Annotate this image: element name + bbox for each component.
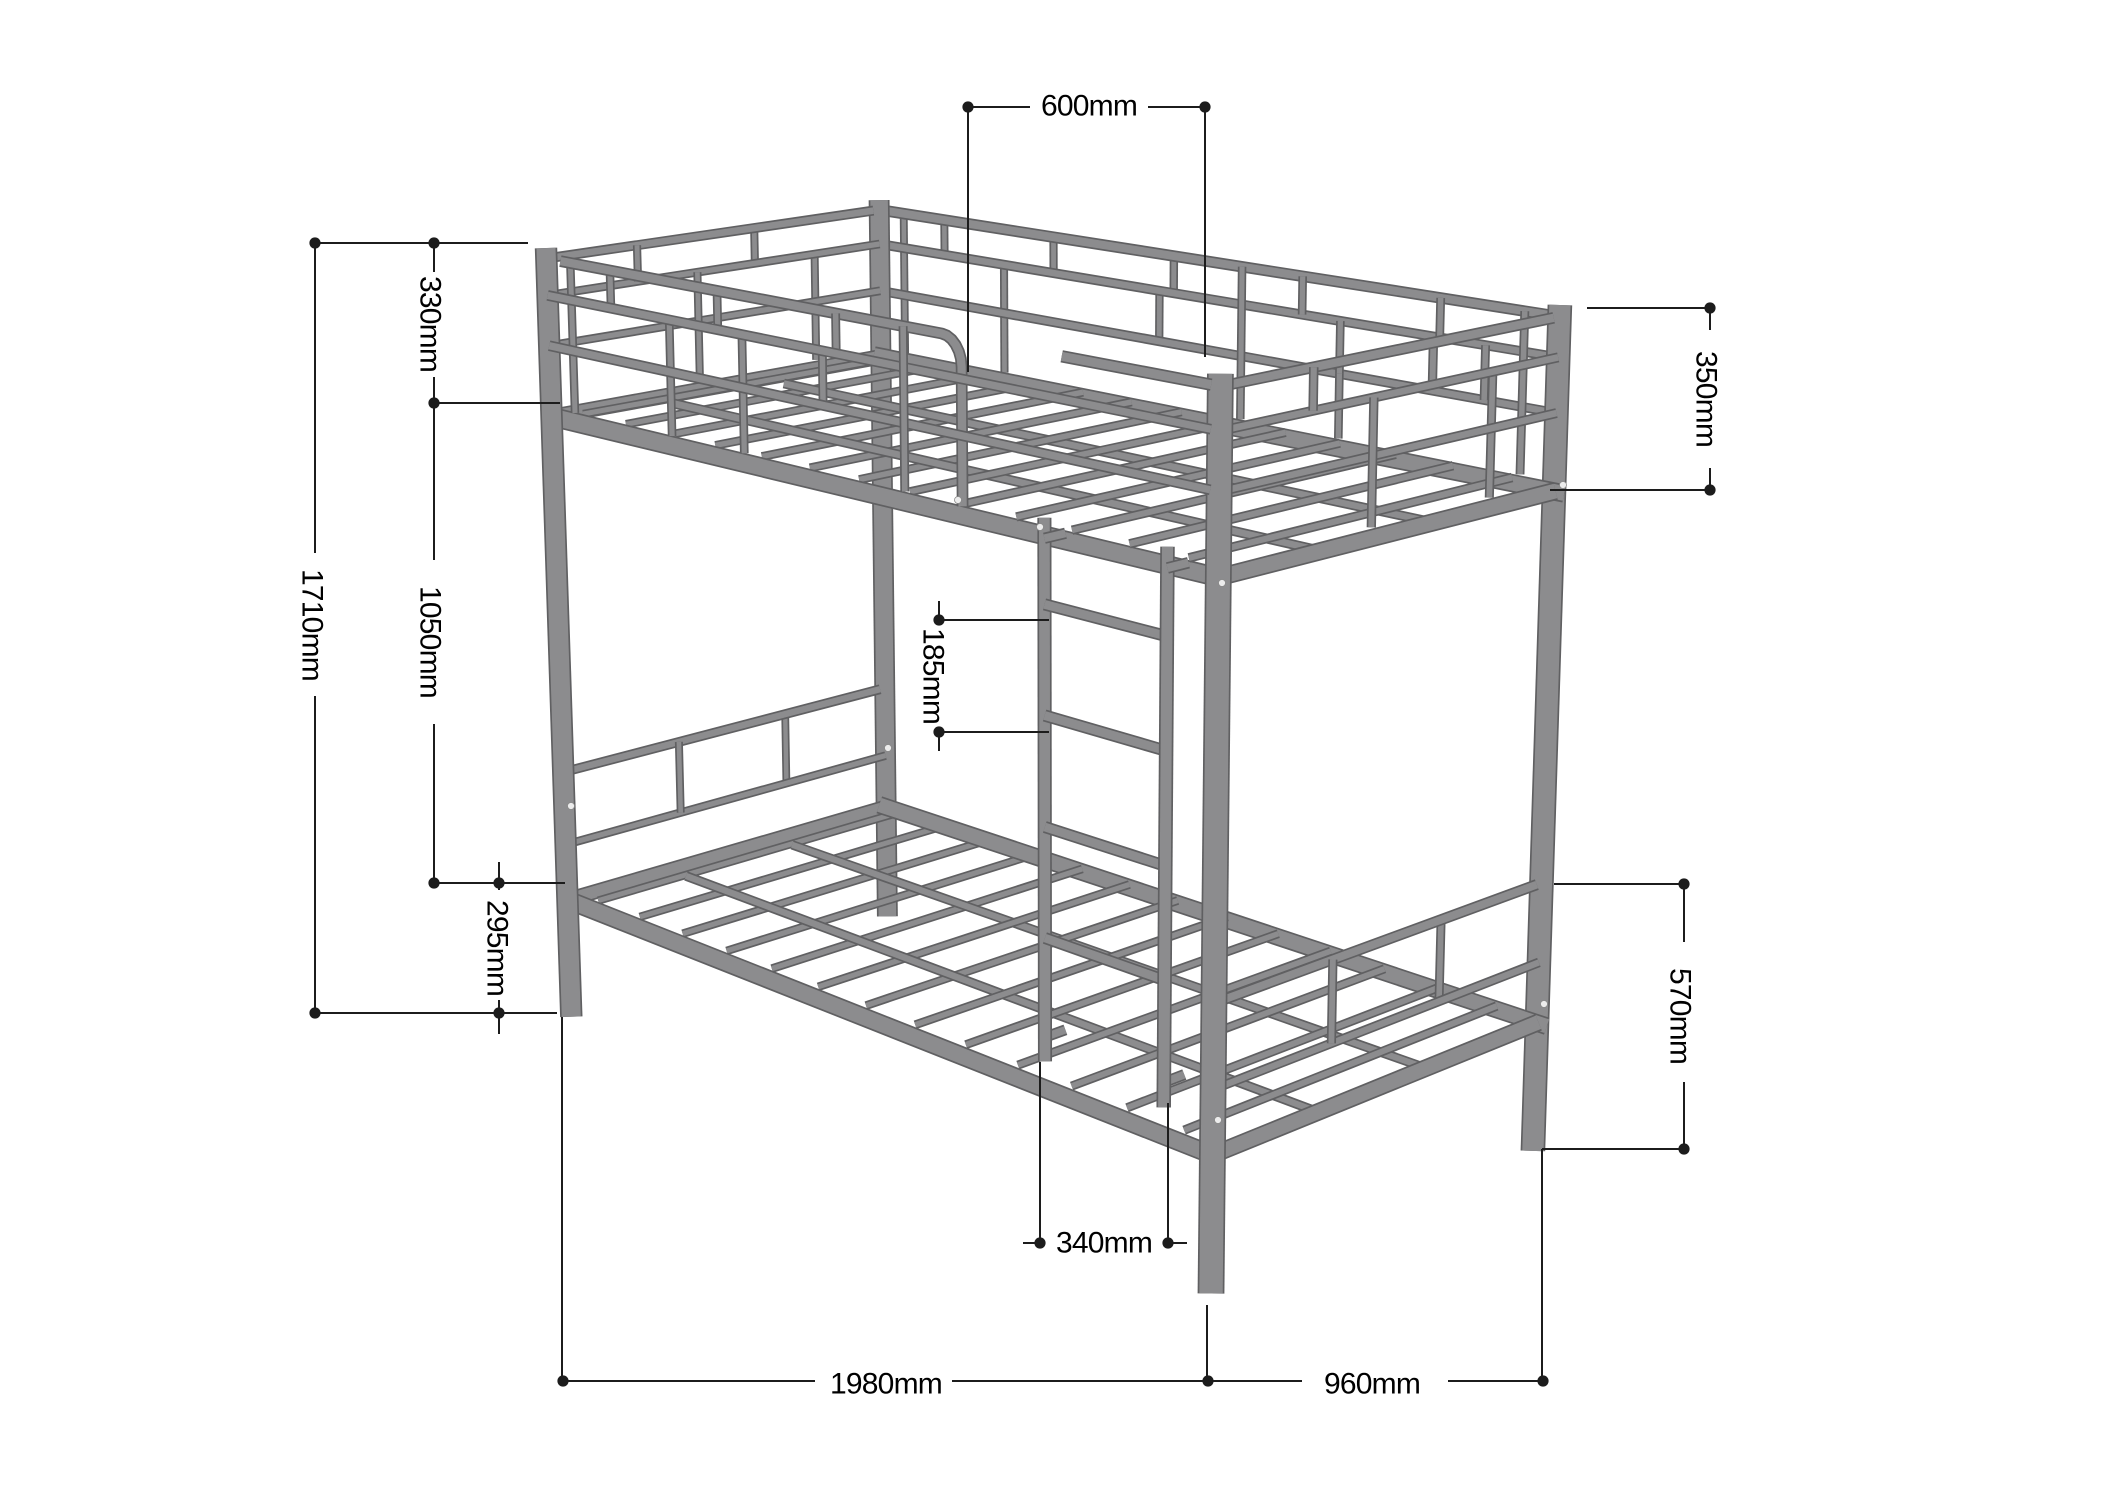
- svg-text:330mm: 330mm: [414, 276, 447, 372]
- svg-text:1050mm: 1050mm: [414, 586, 447, 698]
- svg-text:1980mm: 1980mm: [830, 1368, 942, 1401]
- svg-text:340mm: 340mm: [1056, 1227, 1152, 1260]
- svg-text:600mm: 600mm: [1041, 90, 1137, 123]
- svg-text:960mm: 960mm: [1324, 1368, 1420, 1401]
- svg-text:570mm: 570mm: [1664, 968, 1697, 1064]
- svg-text:350mm: 350mm: [1690, 351, 1723, 447]
- svg-text:185mm: 185mm: [917, 628, 950, 724]
- svg-text:295mm: 295mm: [481, 900, 514, 996]
- svg-text:1710mm: 1710mm: [296, 569, 329, 681]
